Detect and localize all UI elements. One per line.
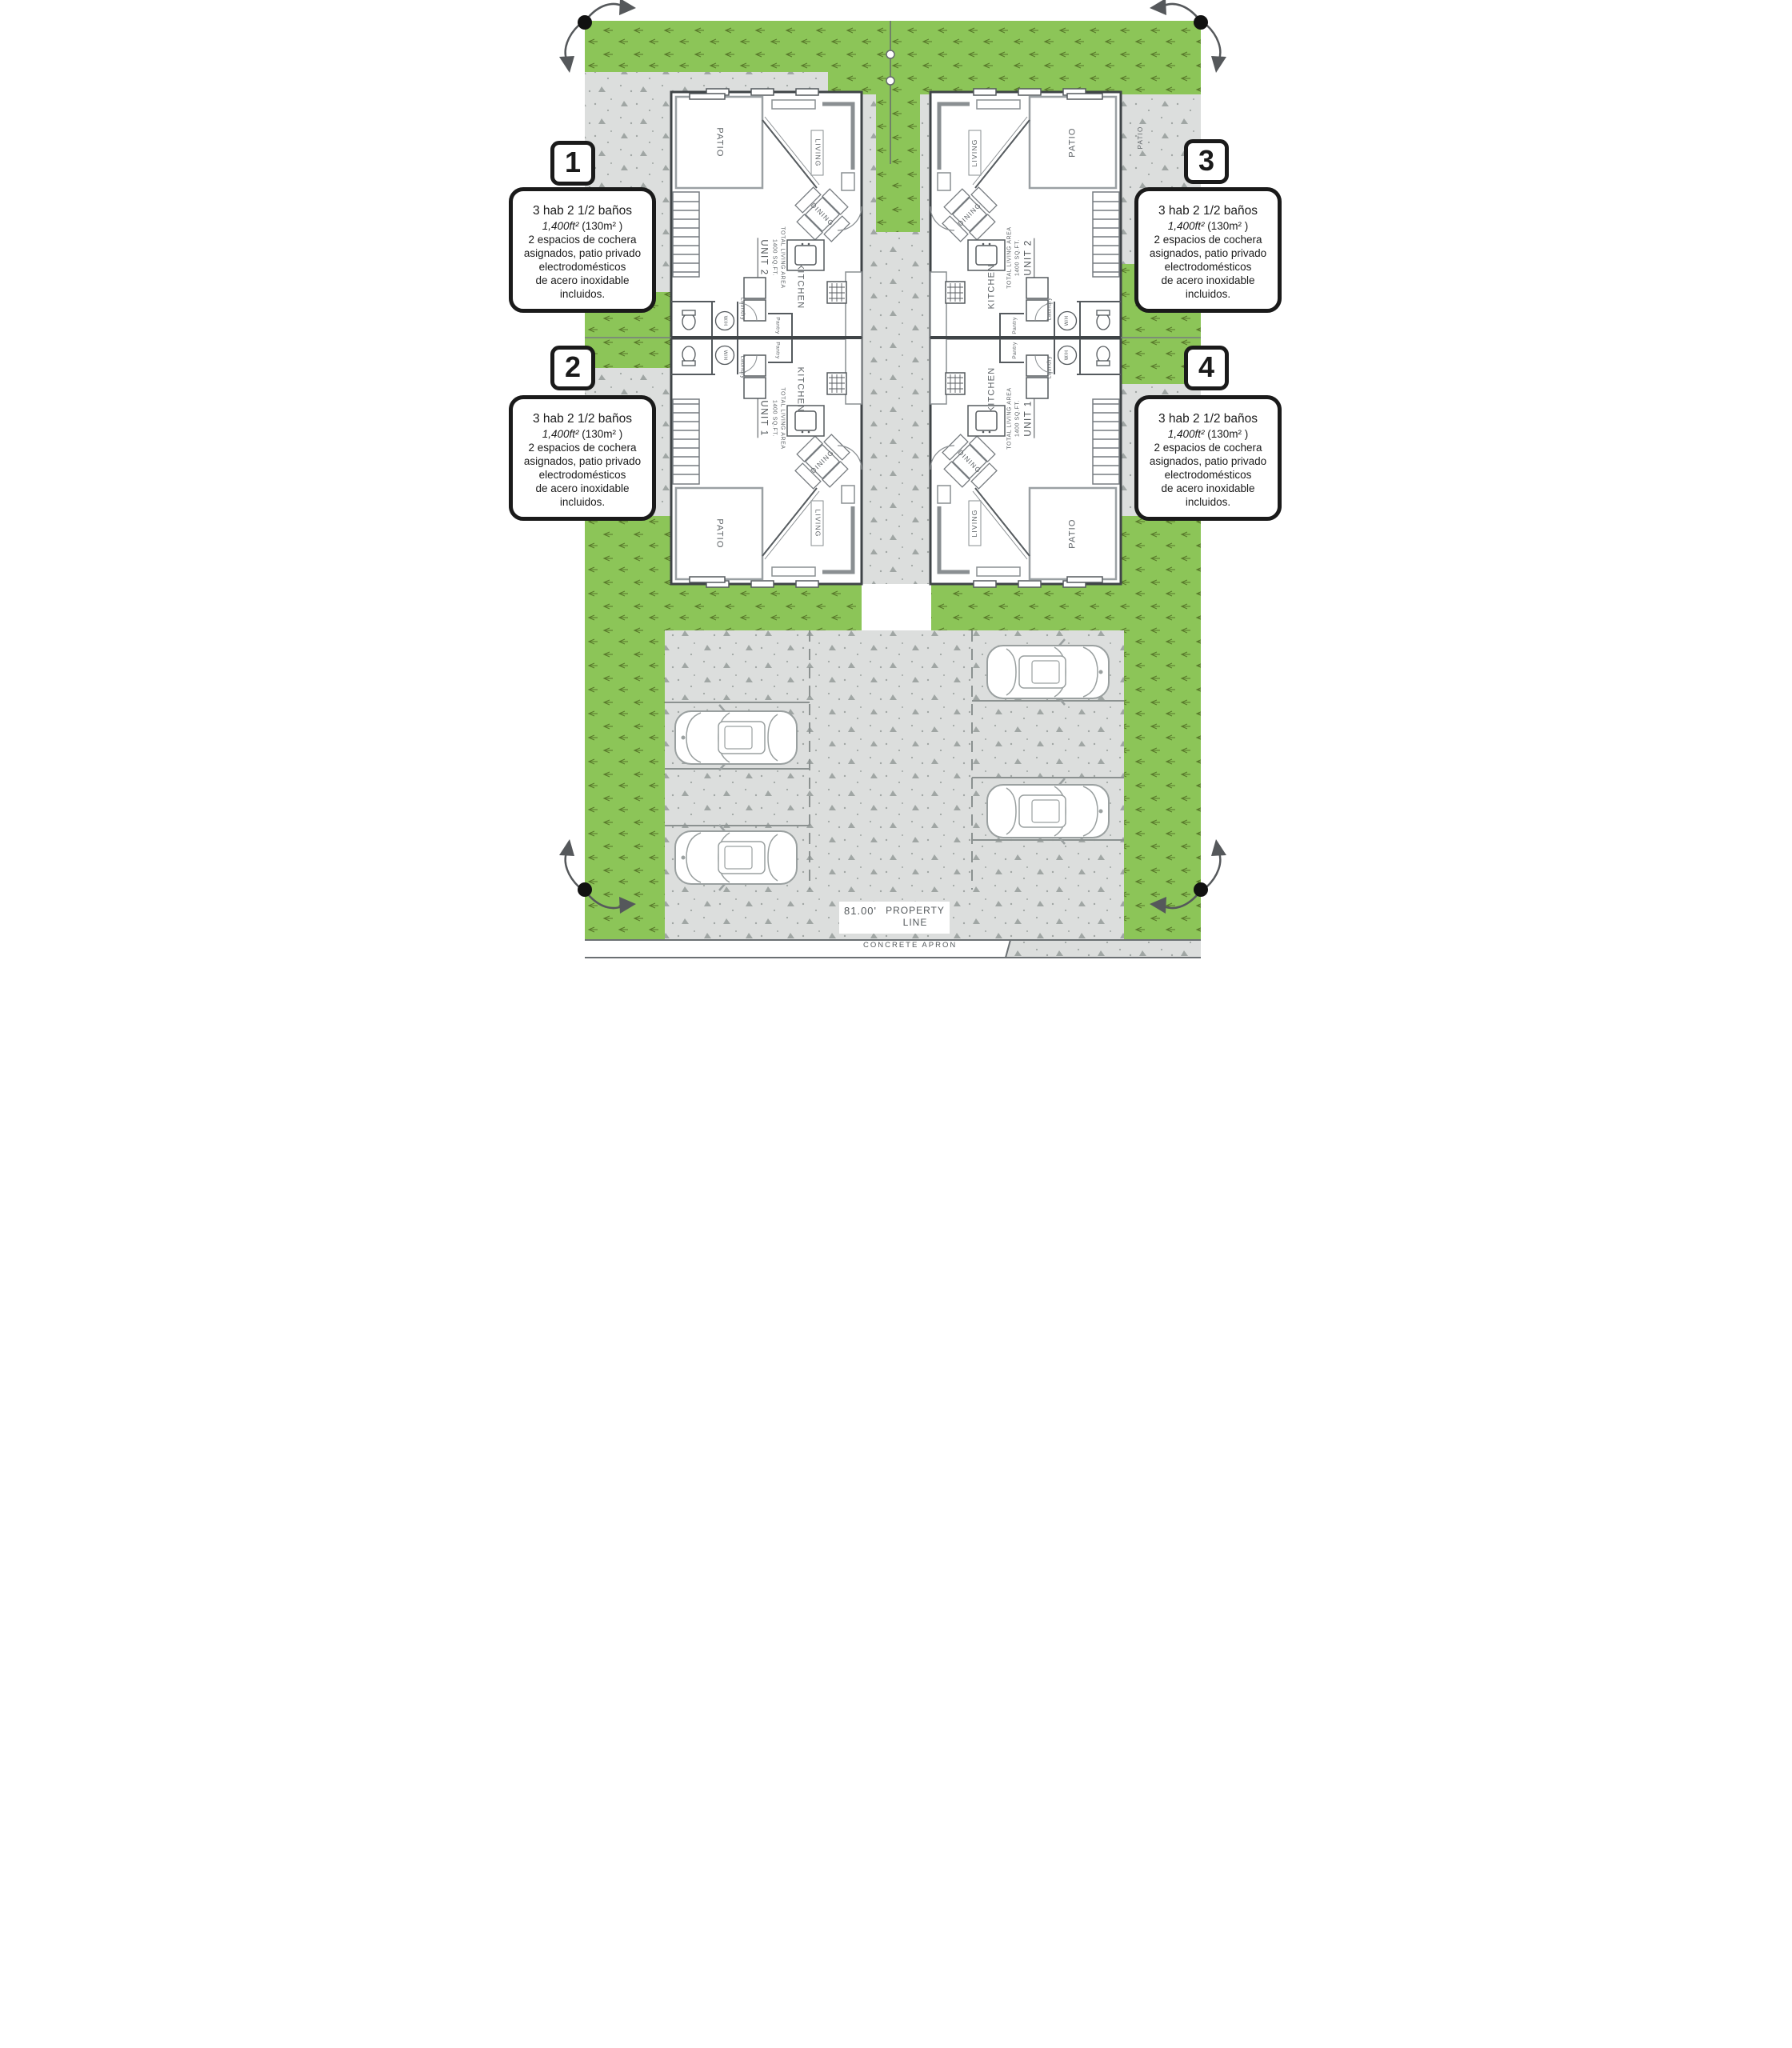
unit-label-block: TOTAL LIVING AREA 1400 SQ.FT. UNIT 1: [1006, 387, 1034, 449]
room-label-kitchen: KITCHEN: [988, 264, 997, 310]
room-label-laundry: Laundry: [1047, 356, 1053, 379]
parked-car: [987, 639, 1109, 705]
callout-parking: 2 espacios de cochera: [1141, 441, 1275, 454]
room-label-pantry: Pantry: [1013, 342, 1018, 358]
room-label-living: LIVING: [971, 509, 978, 537]
callout-appliances: electrodomésticos: [515, 468, 650, 482]
parked-car: [675, 825, 797, 890]
room-label-pantry: Pantry: [1013, 317, 1018, 334]
property-line-label: PROPERTY LINE: [886, 905, 945, 929]
callout-appliances: electrodomésticos: [1141, 260, 1275, 274]
room-label-kitchen: KITCHEN: [796, 264, 805, 310]
callout-appliances-2: de acero inoxidable incluidos.: [515, 482, 650, 509]
room-label-living: LIVING: [814, 509, 822, 537]
unit-number-label: UNIT 2: [1023, 238, 1035, 277]
callout-area: 1,400ft² (130m² ): [515, 427, 650, 442]
room-label-living: LIVING: [971, 138, 978, 166]
room-label-pantry: Pantry: [774, 342, 780, 358]
building-left: [671, 89, 862, 587]
water-heater-label: W/H: [722, 350, 727, 361]
room-label-living: LIVING: [814, 138, 822, 166]
concrete-apron-label: CONCRETE APRON: [861, 941, 959, 950]
callout-parking: 2 espacios de cochera: [515, 233, 650, 246]
callout-appliances: electrodomésticos: [1141, 468, 1275, 482]
callout-appliances: electrodomésticos: [515, 260, 650, 274]
water-heater-label: W/H: [1065, 350, 1070, 361]
callout-beds-baths: 3 hab 2 1/2 baños: [515, 204, 650, 219]
water-heater-label: W/H: [1065, 316, 1070, 326]
area-sqft-label: 1400 SQ.FT.: [1015, 239, 1022, 276]
area-sqft-label: 1400 SQ.FT.: [770, 239, 777, 276]
area-sqft-label: 1400 SQ.FT.: [770, 400, 777, 437]
unit-label-block: TOTAL LIVING AREA 1400 SQ.FT. UNIT 2: [757, 226, 785, 288]
room-label-kitchen: KITCHEN: [796, 367, 805, 413]
unit-number-label: UNIT 1: [1023, 398, 1035, 438]
room-label-patio: PATIO: [1138, 126, 1144, 150]
total-living-area-label: TOTAL LIVING AREA: [778, 387, 785, 449]
room-label-kitchen: KITCHEN: [988, 367, 997, 413]
callout-area: 1,400ft² (130m² ): [1141, 219, 1275, 234]
callout-patio: asignados, patio privado: [1141, 246, 1275, 260]
parked-car: [675, 705, 797, 770]
callout-beds-baths: 3 hab 2 1/2 baños: [1141, 412, 1275, 427]
building-right: [930, 89, 1121, 587]
callout-patio: asignados, patio privado: [1141, 454, 1275, 468]
callout-patio: asignados, patio privado: [515, 246, 650, 260]
callout-unit-3: 3 hab 2 1/2 baños 1,400ft² (130m² ) 2 es…: [1134, 187, 1282, 313]
parked-car: [987, 778, 1109, 844]
water-heater-label: W/H: [722, 316, 727, 326]
room-label-laundry: Laundry: [1047, 298, 1053, 321]
callout-beds-baths: 3 hab 2 1/2 baños: [515, 412, 650, 427]
callout-unit-2: 3 hab 2 1/2 baños 1,400ft² (130m² ) 2 es…: [509, 395, 656, 521]
unit-label-block: TOTAL LIVING AREA 1400 SQ.FT. UNIT 1: [757, 387, 785, 449]
callout-unit-4: 3 hab 2 1/2 baños 1,400ft² (130m² ) 2 es…: [1134, 395, 1282, 521]
site-plan-page: PATIO LIVING DINING KITCHEN Laundry Pant…: [448, 0, 1344, 1024]
callout-appliances-2: de acero inoxidable incluidos.: [515, 274, 650, 301]
unit-badge-1: 1: [550, 141, 595, 186]
total-living-area-label: TOTAL LIVING AREA: [778, 226, 785, 288]
callout-appliances-2: de acero inoxidable incluidos.: [1141, 274, 1275, 301]
callout-area: 1,400ft² (130m² ): [1141, 427, 1275, 442]
unit-number-label: UNIT 1: [757, 398, 769, 438]
room-label-laundry: Laundry: [740, 298, 746, 321]
room-label-pantry: Pantry: [774, 317, 780, 334]
callout-parking: 2 espacios de cochera: [1141, 233, 1275, 246]
callout-unit-1: 3 hab 2 1/2 baños 1,400ft² (130m² ) 2 es…: [509, 187, 656, 313]
property-dimension: 81.00': [844, 905, 877, 917]
room-label-patio: PATIO: [715, 518, 724, 548]
total-living-area-label: TOTAL LIVING AREA: [1006, 226, 1013, 288]
total-living-area-label: TOTAL LIVING AREA: [1006, 387, 1013, 449]
callout-parking: 2 espacios de cochera: [515, 441, 650, 454]
unit-number-label: UNIT 2: [757, 238, 769, 277]
callout-area: 1,400ft² (130m² ): [515, 219, 650, 234]
room-label-patio: PATIO: [1069, 127, 1078, 157]
unit-badge-4: 4: [1184, 346, 1229, 390]
unit-badge-3: 3: [1184, 139, 1229, 184]
room-label-laundry: Laundry: [740, 356, 746, 379]
callout-beds-baths: 3 hab 2 1/2 baños: [1141, 204, 1275, 219]
area-sqft-label: 1400 SQ.FT.: [1015, 400, 1022, 437]
callout-patio: asignados, patio privado: [515, 454, 650, 468]
property-line-label-box: 81.00' PROPERTY LINE: [839, 902, 950, 934]
unit-label-block: TOTAL LIVING AREA 1400 SQ.FT. UNIT 2: [1006, 226, 1034, 288]
room-label-patio: PATIO: [1069, 518, 1078, 548]
callout-appliances-2: de acero inoxidable incluidos.: [1141, 482, 1275, 509]
room-label-patio: PATIO: [715, 127, 724, 157]
unit-badge-2: 2: [550, 346, 595, 390]
